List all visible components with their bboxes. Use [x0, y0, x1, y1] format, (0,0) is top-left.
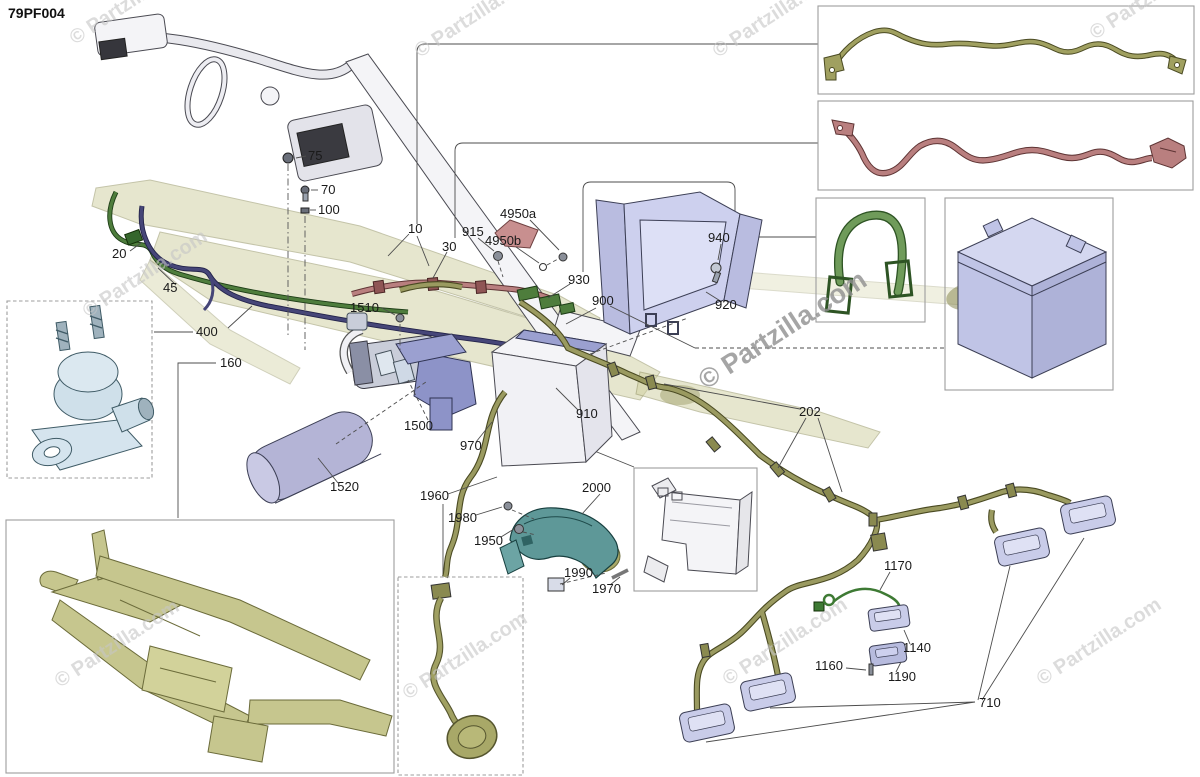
screw-1970 — [612, 570, 628, 578]
callout-45: 45 — [163, 280, 177, 295]
callout-1960: 1960 — [420, 488, 449, 503]
callout-970: 970 — [460, 438, 482, 453]
callout-4950a: 4950a — [500, 206, 537, 221]
solenoid-drawing — [29, 305, 156, 470]
diagram-code: 79PF004 — [8, 5, 65, 21]
bolt-915 — [494, 252, 503, 261]
callout-70: 70 — [321, 182, 335, 197]
callout-75: 75 — [308, 148, 322, 163]
callout-1950: 1950 — [474, 533, 503, 548]
callout-1140: 1140 — [903, 640, 931, 655]
callout-30: 30 — [442, 239, 456, 254]
bolt-1980 — [504, 502, 512, 510]
nut-100 — [301, 208, 309, 213]
positive-cable-drawing — [832, 120, 1186, 173]
bracket-drawing — [644, 478, 752, 582]
screw-1160 — [869, 664, 873, 675]
watermark-text: © Partzilla.com — [709, 0, 841, 62]
callout-202: 202 — [799, 404, 821, 419]
callout-100: 100 — [318, 202, 340, 217]
callout-1510: 1510 — [350, 300, 379, 315]
callout-10: 10 — [408, 221, 422, 236]
callout-1160: 1160 — [815, 658, 843, 673]
tube-drawing — [240, 403, 381, 509]
clip-1990 — [548, 578, 564, 591]
callout-915: 915 — [462, 224, 484, 239]
callout-400: 400 — [196, 324, 218, 339]
callout-1170: 1170 — [884, 558, 912, 573]
bolt-4950a — [559, 253, 567, 261]
watermark-text: © Partzilla.com — [1086, 0, 1200, 44]
callout-930: 930 — [568, 272, 590, 287]
watermark-text: © Partzilla.com — [1033, 593, 1165, 690]
bolt-75 — [283, 153, 293, 163]
callout-1520: 1520 — [330, 479, 359, 494]
callout-20: 20 — [112, 246, 126, 261]
watermark-text: © Partzilla.com — [399, 607, 531, 704]
inset-ground-cable-box — [818, 6, 1194, 94]
harness-connector — [871, 533, 888, 551]
relay-drawing — [347, 313, 367, 330]
watermark-text: © Partzilla.com — [411, 0, 543, 62]
callout-710: 710 — [979, 695, 1001, 710]
callout-1980: 1980 — [448, 510, 477, 525]
callout-900: 900 — [592, 293, 614, 308]
inset-positive-cable-box — [818, 101, 1193, 190]
callout-4950b: 4950b — [485, 233, 521, 248]
callout-920: 920 — [715, 297, 737, 312]
washer-4950b — [540, 264, 547, 271]
callout-2000: 2000 — [582, 480, 611, 495]
bolt-1510 — [396, 314, 404, 322]
battery-drawing — [958, 218, 1106, 378]
callout-160: 160 — [220, 355, 242, 370]
ground-cable-drawing — [824, 30, 1186, 80]
wiring-diagram-canvas: © Partzilla.com © Partzilla.com © Partzi… — [0, 0, 1200, 777]
parts-diagram-page: © Partzilla.com © Partzilla.com © Partzi… — [0, 0, 1200, 777]
callout-1970: 1970 — [592, 581, 621, 596]
bolt-1950 — [515, 525, 524, 534]
callout-1990: 1990 — [564, 565, 593, 580]
callout-910: 910 — [576, 406, 598, 421]
battery-cover-drawing — [596, 192, 762, 334]
callout-940: 940 — [708, 230, 730, 245]
callout-1190: 1190 — [888, 669, 916, 684]
callout-1500: 1500 — [404, 418, 433, 433]
